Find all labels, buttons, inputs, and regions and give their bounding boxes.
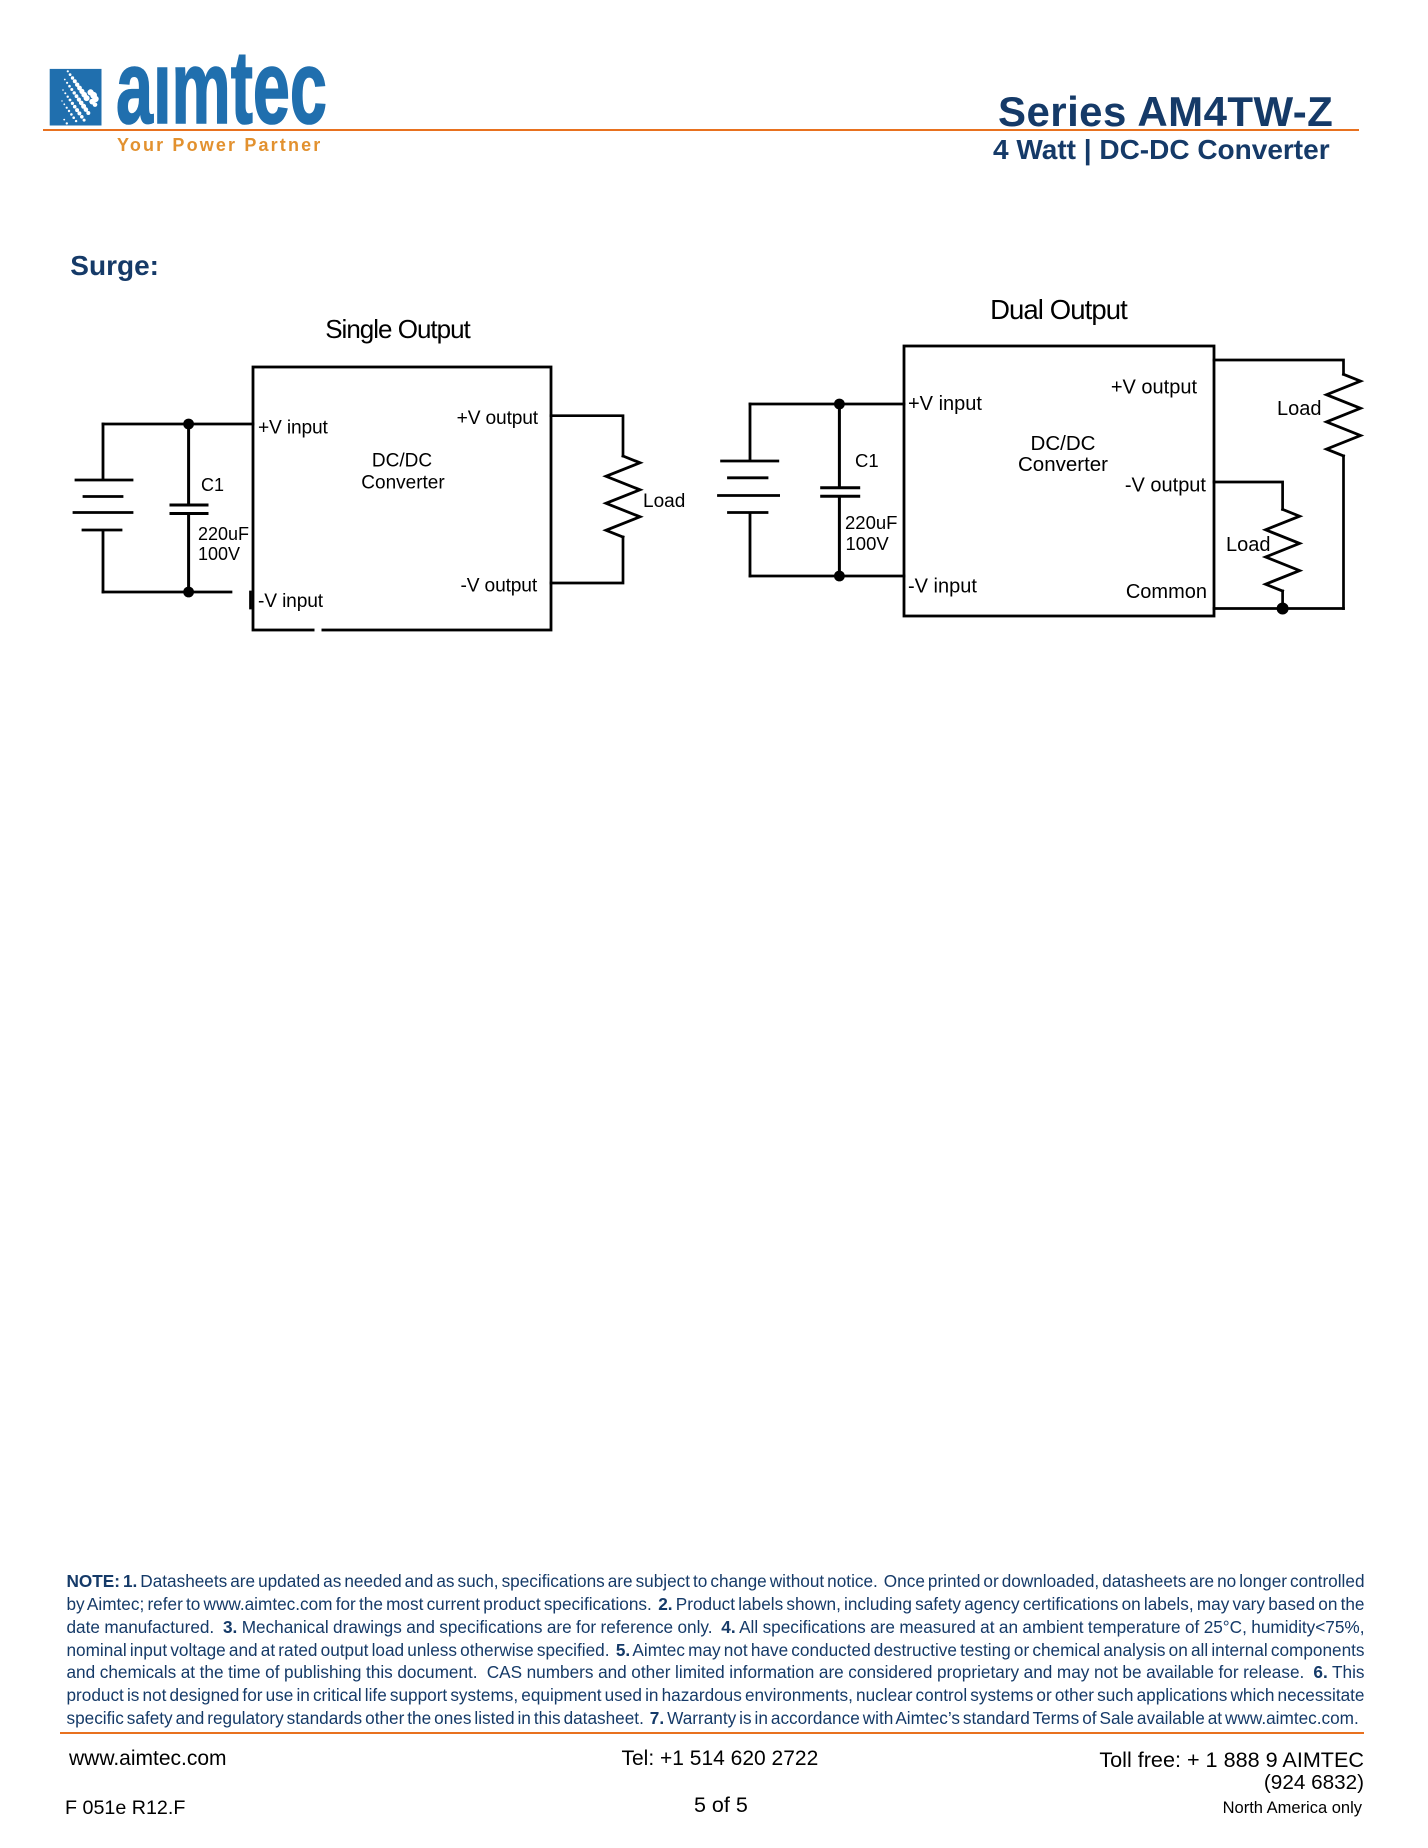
- svg-text:+V output: +V output: [1111, 377, 1198, 399]
- svg-text:-V output: -V output: [1125, 475, 1207, 497]
- svg-text:Dual Output: Dual Output: [990, 294, 1128, 325]
- svg-text:-V output: -V output: [460, 576, 537, 597]
- svg-text:Load: Load: [1226, 534, 1271, 556]
- svg-text:-V input: -V input: [258, 591, 324, 612]
- svg-text:100V: 100V: [846, 533, 890, 554]
- svg-text:Converter: Converter: [1018, 453, 1108, 476]
- svg-text:220uF: 220uF: [198, 524, 249, 544]
- svg-text:-V input: -V input: [908, 576, 977, 598]
- svg-text:DC/DC: DC/DC: [372, 451, 432, 472]
- svg-text:+V input: +V input: [258, 417, 329, 438]
- svg-text:Converter: Converter: [361, 473, 445, 494]
- svg-text:DC/DC: DC/DC: [1031, 432, 1096, 455]
- svg-text:C1: C1: [855, 450, 879, 471]
- svg-text:C1: C1: [201, 475, 224, 495]
- svg-text:Load: Load: [643, 491, 685, 512]
- svg-text:+V input: +V input: [908, 393, 982, 415]
- svg-text:Load: Load: [1277, 398, 1322, 420]
- svg-text:Single Output: Single Output: [325, 314, 471, 344]
- svg-text:+V output: +V output: [457, 408, 539, 429]
- svg-text:Common: Common: [1126, 581, 1207, 603]
- svg-text:100V: 100V: [198, 544, 240, 564]
- svg-text:220uF: 220uF: [845, 512, 897, 533]
